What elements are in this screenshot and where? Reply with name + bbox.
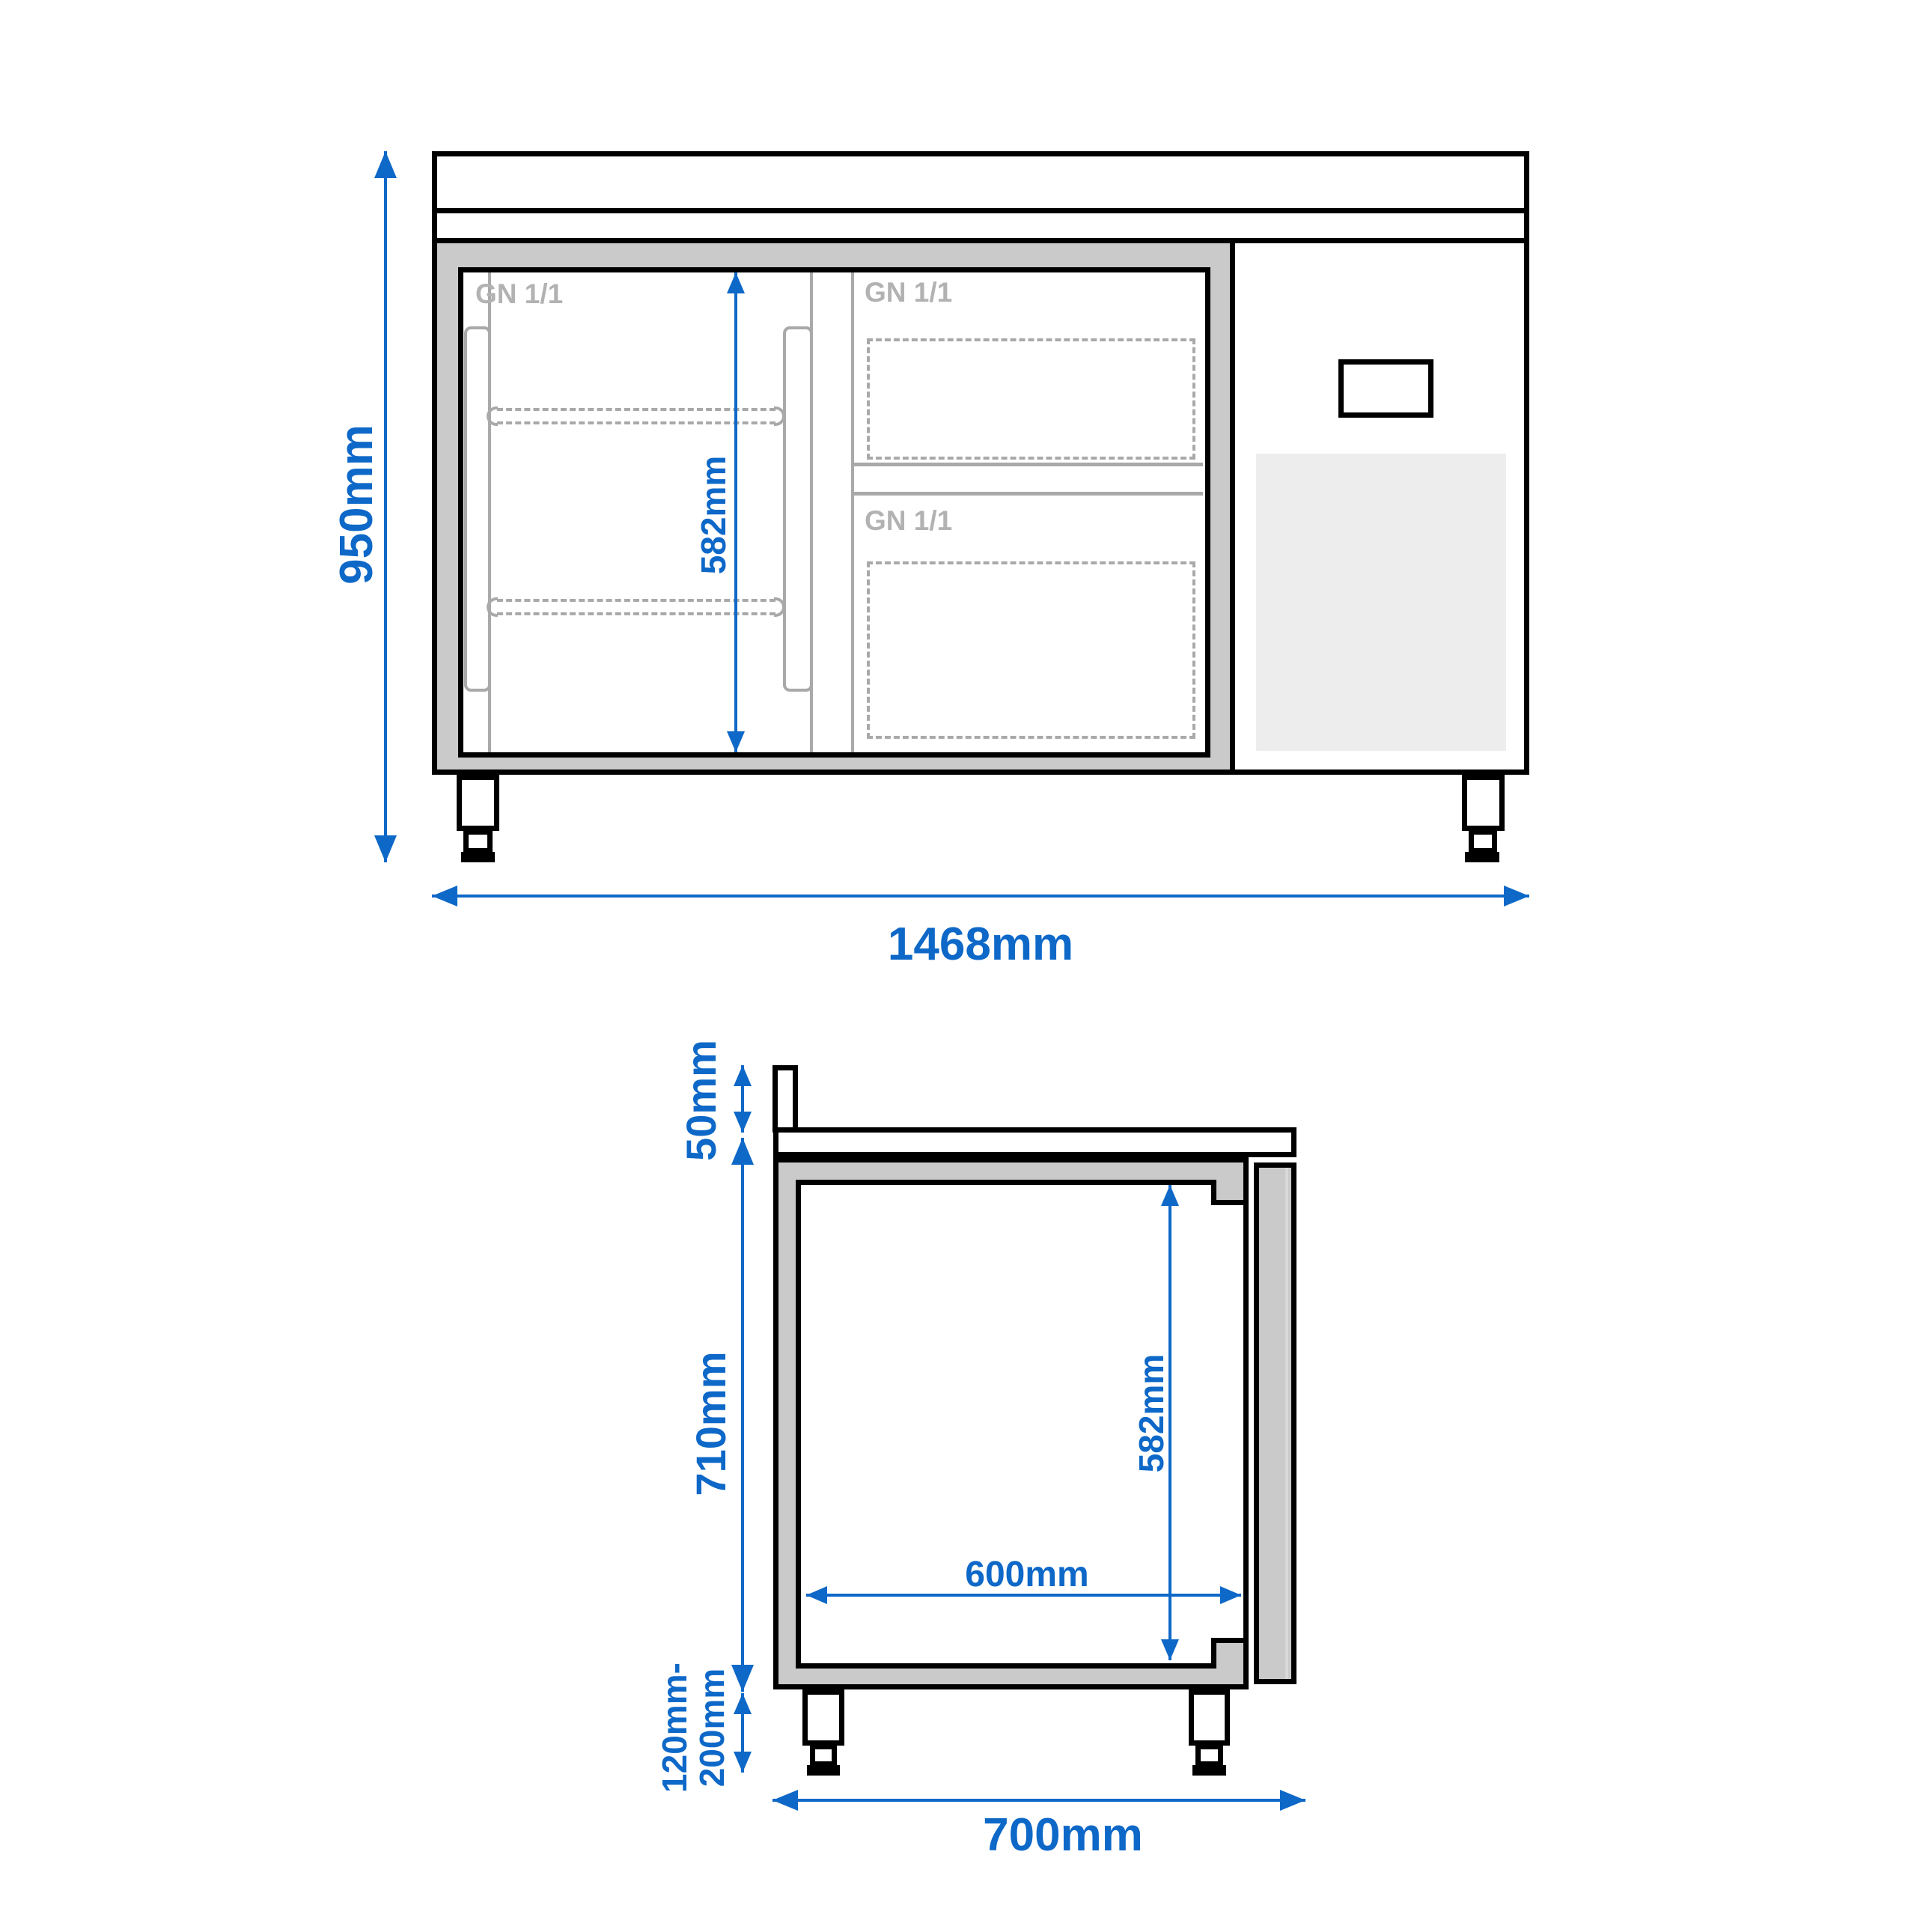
dim-582-front-arrow-bottom bbox=[727, 731, 745, 752]
dim-1468-line bbox=[432, 895, 1529, 898]
drawer-divider-lower-line bbox=[854, 492, 1203, 496]
door-rail-left bbox=[464, 326, 491, 692]
dim-582-front-arrow-top bbox=[727, 272, 745, 293]
dim-700-label: 700mm bbox=[913, 1812, 1213, 1859]
dim-950-arrow-top bbox=[374, 151, 397, 178]
dim-950-label: 950mm bbox=[334, 392, 380, 617]
ventilation-grille bbox=[1256, 454, 1506, 751]
dim-feet-label-line2: 200mm bbox=[693, 1645, 731, 1810]
dim-600-arrow-left bbox=[806, 1586, 827, 1604]
side-right-foot-upper bbox=[1189, 1689, 1230, 1746]
front-countertop-lower-line bbox=[432, 238, 1529, 243]
dim-50-label: 50mm bbox=[680, 1011, 722, 1190]
side-bottom-hinge-step bbox=[1211, 1638, 1243, 1669]
dim-feet-label: 120mm- 200mm bbox=[656, 1645, 731, 1810]
dim-582-side-arrow-top bbox=[1161, 1185, 1179, 1206]
dim-1468-arrow-left bbox=[432, 886, 457, 906]
side-left-foot-cap bbox=[807, 1765, 840, 1776]
drawer-divider-upper-line bbox=[854, 463, 1203, 466]
dim-50-arrow-top bbox=[734, 1065, 752, 1086]
dim-710-arrow-bottom bbox=[731, 1665, 754, 1692]
side-door bbox=[1254, 1162, 1296, 1684]
side-left-foot-upper bbox=[802, 1689, 844, 1746]
drawer-bottom-gn-pan-outline bbox=[867, 561, 1195, 739]
dim-710-arrow-top bbox=[731, 1138, 754, 1165]
side-right-foot-lower bbox=[1195, 1744, 1223, 1767]
dim-582-front-line bbox=[734, 272, 737, 752]
dim-950-line bbox=[384, 151, 387, 862]
dim-600-arrow-right bbox=[1220, 1586, 1241, 1604]
drawer-top-gn-pan-outline bbox=[867, 338, 1195, 460]
front-countertop-edge-line bbox=[432, 208, 1529, 213]
drawer-bottom-gn-label: GN 1/1 bbox=[865, 505, 952, 537]
side-door-inner-line bbox=[1285, 1168, 1288, 1679]
dim-1468-label: 1468mm bbox=[793, 921, 1168, 968]
dim-710-line bbox=[741, 1138, 744, 1692]
dim-700-arrow-left bbox=[773, 1790, 798, 1811]
front-left-foot-upper bbox=[457, 775, 499, 831]
front-right-foot-cap bbox=[1465, 852, 1499, 862]
side-right-foot-cap bbox=[1192, 1765, 1226, 1776]
dim-700-line bbox=[773, 1799, 1305, 1802]
door-gn-label: GN 1/1 bbox=[475, 278, 563, 310]
front-right-foot-lower bbox=[1469, 829, 1497, 853]
front-machine-divider-line bbox=[1230, 243, 1235, 770]
dim-feet-label-line1: 120mm- bbox=[656, 1645, 693, 1810]
dim-feet-arrow-bottom bbox=[734, 1752, 752, 1773]
side-top-hinge-step bbox=[1211, 1180, 1243, 1205]
dim-feet-arrow-top bbox=[734, 1693, 752, 1714]
dim-700-arrow-right bbox=[1280, 1790, 1305, 1811]
front-right-foot-upper bbox=[1462, 775, 1505, 831]
control-display-panel bbox=[1338, 359, 1433, 418]
dim-50-arrow-bottom bbox=[734, 1112, 752, 1133]
door-rail-right bbox=[783, 326, 813, 692]
dim-582-side-label: 582mm bbox=[1134, 1323, 1168, 1503]
side-backsplash bbox=[773, 1065, 798, 1133]
side-left-foot-lower bbox=[810, 1744, 837, 1767]
front-left-foot-lower bbox=[463, 829, 493, 853]
dim-950-arrow-bottom bbox=[374, 835, 397, 862]
dim-600-label: 600mm bbox=[915, 1557, 1139, 1593]
drawer-panel-left-edge-line bbox=[851, 272, 854, 752]
dim-1468-arrow-right bbox=[1504, 886, 1529, 906]
drawer-top-gn-label: GN 1/1 bbox=[865, 277, 952, 308]
side-countertop bbox=[773, 1127, 1296, 1157]
dim-582-front-label: 582mm bbox=[696, 425, 731, 605]
front-left-foot-cap bbox=[461, 852, 495, 862]
dim-582-side-arrow-bottom bbox=[1161, 1639, 1179, 1660]
dim-710-label: 710mm bbox=[690, 1334, 732, 1514]
technical-drawing-canvas: GN 1/1 GN 1/1 GN 1/1 950mm 582mm 1468mm bbox=[0, 0, 1932, 1932]
